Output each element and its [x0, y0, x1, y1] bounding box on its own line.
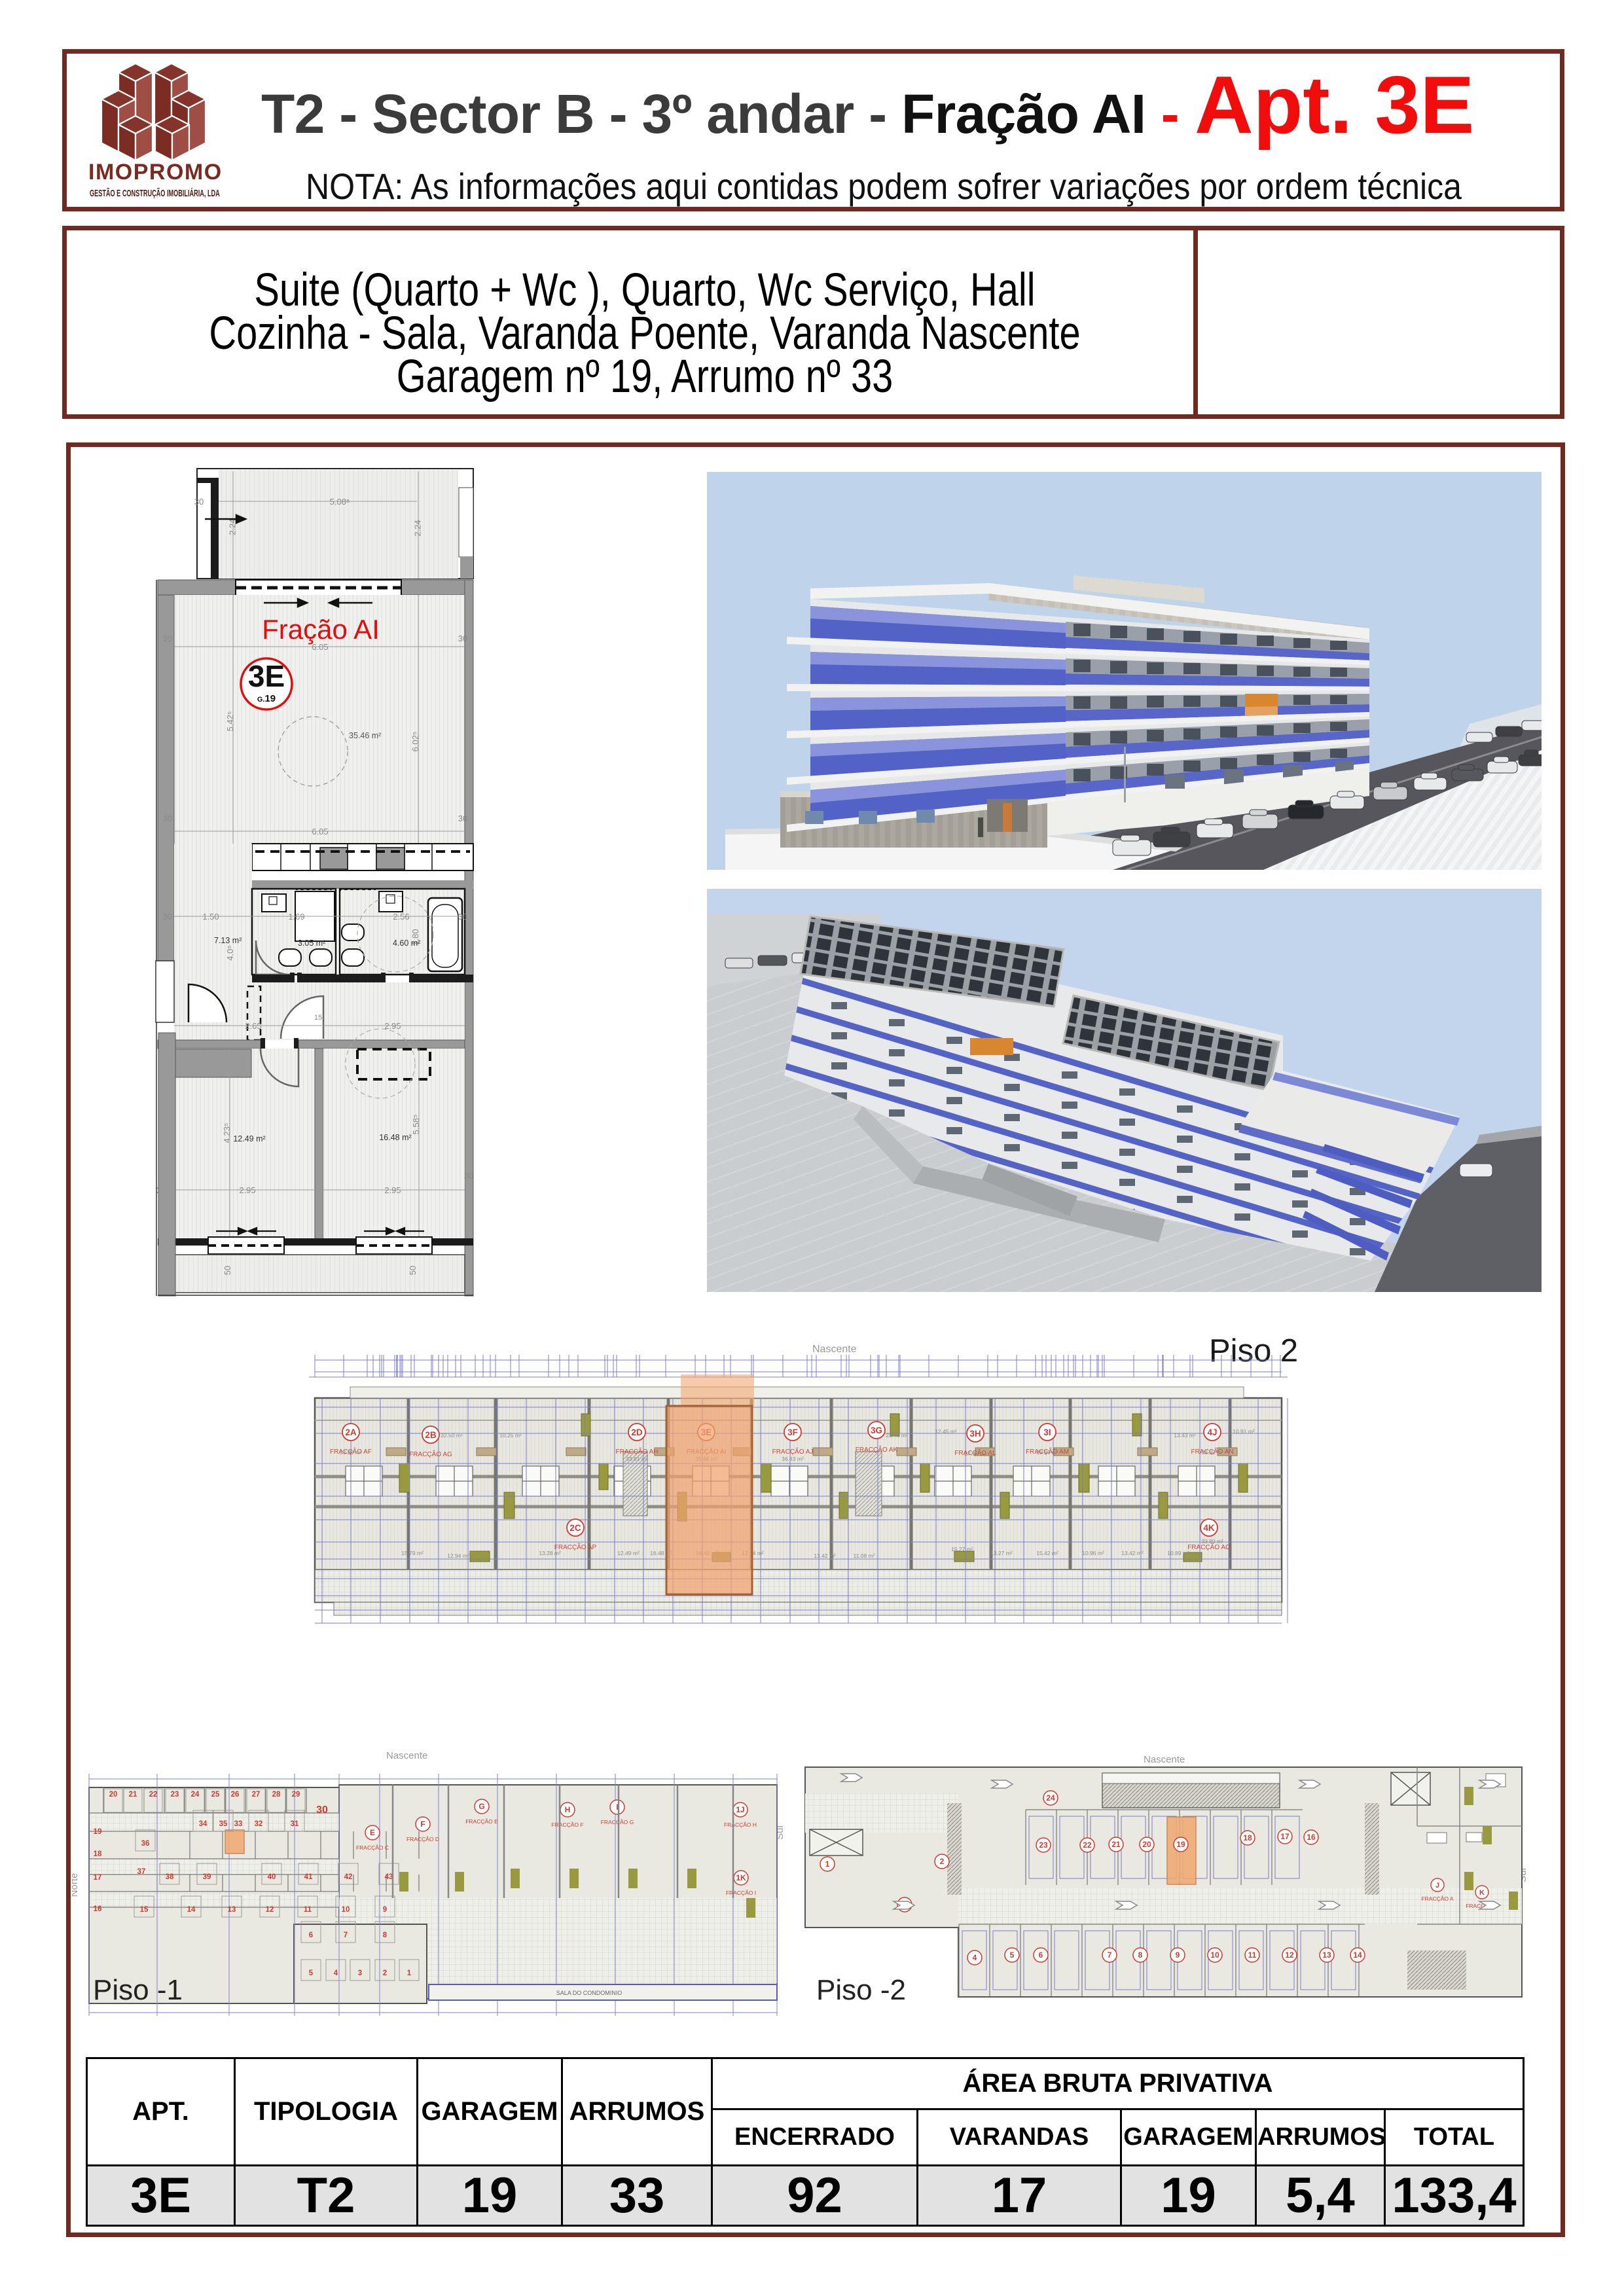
svg-text:10: 10: [342, 1906, 350, 1914]
svg-text:3G: 3G: [871, 1426, 882, 1435]
svg-text:2D: 2D: [631, 1427, 643, 1437]
svg-text:FRACÇÃO G: FRACÇÃO G: [601, 1819, 634, 1825]
svg-text:8: 8: [1138, 1950, 1143, 1960]
svg-text:23: 23: [1039, 1840, 1048, 1850]
svg-text:42: 42: [344, 1873, 353, 1881]
svg-text:F: F: [420, 1820, 425, 1829]
svg-text:Piso -1: Piso -1: [93, 1974, 183, 2006]
svg-text:13: 13: [1322, 1950, 1331, 1960]
svg-text:FRACÇÃO AH: FRACÇÃO AH: [615, 1447, 658, 1456]
svg-text:24: 24: [191, 1791, 200, 1799]
svg-text:7: 7: [344, 1931, 348, 1939]
svg-text:6.05: 6.05: [312, 642, 328, 652]
svg-text:Nascente: Nascente: [386, 1750, 427, 1761]
svg-text:3.05 m²: 3.05 m²: [298, 939, 325, 948]
svg-text:Nascente: Nascente: [812, 1344, 857, 1355]
svg-text:7: 7: [1108, 1950, 1112, 1960]
svg-text:13.28 m²: 13.28 m²: [539, 1550, 561, 1556]
svg-text:17: 17: [1280, 1832, 1290, 1841]
svg-text:2C: 2C: [569, 1523, 581, 1533]
svg-text:12: 12: [1285, 1950, 1294, 1960]
svg-text:2: 2: [383, 1969, 387, 1977]
svg-text:12.49 m²: 12.49 m²: [617, 1550, 640, 1556]
svg-text:32: 32: [255, 1820, 263, 1828]
svg-text:30: 30: [163, 912, 172, 922]
svg-text:6: 6: [309, 1931, 313, 1939]
svg-text:18: 18: [1243, 1833, 1252, 1842]
svg-text:11: 11: [304, 1906, 312, 1914]
svg-text:FRACÇÃO H: FRACÇÃO H: [724, 1821, 757, 1828]
svg-text:30: 30: [458, 814, 467, 823]
svg-text:Norte: Norte: [72, 1873, 80, 1897]
svg-text:33.81 m²: 33.81 m²: [626, 1456, 648, 1462]
svg-text:37: 37: [137, 1868, 146, 1876]
svg-text:15: 15: [140, 1906, 149, 1914]
svg-text:SALA DO CONDOMINIO: SALA DO CONDOMINIO: [556, 1990, 623, 1996]
svg-text:2: 2: [940, 1857, 945, 1866]
svg-text:31: 31: [291, 1820, 299, 1828]
svg-text:FRACÇÃO E: FRACÇÃO E: [465, 1818, 498, 1825]
svg-text:43: 43: [385, 1873, 393, 1881]
svg-text:35.46 m²: 35.46 m²: [349, 731, 381, 740]
svg-text:H: H: [565, 1805, 571, 1814]
svg-text:1J: 1J: [736, 1805, 744, 1814]
svg-text:4J: 4J: [1207, 1427, 1217, 1437]
svg-text:27.96 m²: 27.96 m²: [964, 1450, 986, 1457]
svg-text:10.96 m²: 10.96 m²: [1082, 1550, 1104, 1556]
svg-text:FRACÇÃO AK: FRACÇÃO AK: [856, 1445, 898, 1454]
svg-text:39: 39: [203, 1873, 211, 1881]
svg-text:4: 4: [334, 1969, 338, 1977]
svg-text:25: 25: [211, 1791, 220, 1799]
svg-text:J: J: [1435, 1882, 1439, 1890]
svg-text:30: 30: [458, 634, 467, 643]
svg-text:4K: 4K: [1203, 1523, 1215, 1533]
svg-text:7.13 m²: 7.13 m²: [214, 936, 242, 945]
svg-text:10.89 m²: 10.89 m²: [1167, 1550, 1189, 1556]
svg-text:3F: 3F: [787, 1427, 798, 1437]
svg-text:12: 12: [266, 1906, 274, 1914]
svg-text:14: 14: [1353, 1950, 1362, 1960]
svg-text:15: 15: [314, 1014, 322, 1022]
svg-text:FRACÇÃO I: FRACÇÃO I: [726, 1890, 756, 1896]
svg-text:Piso -2: Piso -2: [816, 1974, 906, 2006]
svg-text:36.36 m²: 36.36 m²: [340, 1449, 362, 1456]
svg-text:5.58⁵: 5.58⁵: [411, 1115, 421, 1135]
svg-text:21: 21: [129, 1791, 137, 1799]
svg-text:FRACÇÃO D: FRACÇÃO D: [406, 1836, 439, 1842]
svg-text:19: 19: [94, 1828, 102, 1836]
svg-text:50: 50: [408, 1266, 418, 1275]
svg-text:K: K: [1479, 1889, 1485, 1897]
svg-text:FRACÇÃO A: FRACÇÃO A: [1421, 1895, 1453, 1902]
svg-text:FRACÇÃO AJ: FRACÇÃO AJ: [772, 1447, 814, 1456]
svg-text:4.60 m²: 4.60 m²: [393, 939, 420, 948]
svg-text:2.24: 2.24: [412, 520, 422, 536]
svg-text:4: 4: [973, 1953, 977, 1962]
svg-text:34: 34: [199, 1820, 208, 1828]
svg-text:1: 1: [407, 1969, 412, 1977]
svg-text:16: 16: [1307, 1833, 1316, 1842]
svg-text:6: 6: [1039, 1950, 1043, 1960]
svg-text:15.27 m²: 15.27 m²: [951, 1546, 973, 1552]
svg-text:33.82 m²: 33.82 m²: [1201, 1449, 1223, 1456]
svg-text:30: 30: [163, 634, 172, 643]
svg-text:28: 28: [272, 1791, 281, 1799]
svg-text:40: 40: [268, 1873, 276, 1881]
svg-text:41: 41: [304, 1873, 313, 1881]
svg-text:4.0⁵: 4.0⁵: [225, 945, 235, 960]
svg-text:32.50 m²: 32.50 m²: [441, 1432, 463, 1439]
svg-text:19: 19: [1176, 1840, 1185, 1849]
svg-text:30: 30: [163, 814, 172, 823]
svg-text:Nascente: Nascente: [1144, 1754, 1185, 1765]
svg-text:16.48 m²: 16.48 m²: [379, 1133, 411, 1142]
svg-text:14: 14: [187, 1906, 196, 1914]
svg-text:FRACÇÃO AG: FRACÇÃO AG: [409, 1450, 452, 1458]
svg-text:E: E: [370, 1828, 375, 1837]
svg-text:Fração AI: Fração AI: [262, 614, 380, 645]
svg-text:G: G: [478, 1802, 484, 1811]
svg-text:12.49 m²: 12.49 m²: [233, 1134, 265, 1143]
svg-text:36: 36: [141, 1840, 150, 1848]
svg-text:36.43 m²: 36.43 m²: [782, 1456, 804, 1462]
svg-text:30: 30: [464, 1171, 473, 1181]
svg-text:30: 30: [316, 1804, 328, 1816]
svg-text:50: 50: [223, 1266, 232, 1275]
svg-text:20: 20: [1142, 1840, 1151, 1849]
svg-text:3I: 3I: [1043, 1427, 1051, 1437]
svg-text:6.02⁵: 6.02⁵: [410, 732, 420, 752]
svg-text:35: 35: [219, 1820, 228, 1828]
svg-text:3H: 3H: [969, 1429, 981, 1439]
svg-text:33: 33: [234, 1820, 243, 1828]
svg-text:5: 5: [1010, 1950, 1015, 1960]
svg-text:1: 1: [825, 1859, 830, 1869]
svg-text:1K: 1K: [736, 1873, 746, 1882]
svg-text:15.42 m²: 15.42 m²: [1036, 1550, 1058, 1556]
svg-text:30: 30: [194, 497, 204, 507]
svg-text:22: 22: [1083, 1840, 1092, 1850]
svg-text:10: 10: [1210, 1950, 1219, 1960]
svg-text:4.23⁵: 4.23⁵: [222, 1123, 232, 1143]
svg-text:20: 20: [109, 1791, 118, 1799]
svg-text:13.43 m²: 13.43 m²: [1174, 1432, 1196, 1439]
svg-text:5.08⁵: 5.08⁵: [330, 497, 350, 507]
svg-text:5: 5: [309, 1969, 314, 1977]
svg-text:12.45 m²: 12.45 m²: [935, 1428, 957, 1435]
svg-text:33.80 m²: 33.80 m²: [1201, 1538, 1223, 1545]
svg-text:23.48 m²: 23.48 m²: [886, 1432, 908, 1439]
svg-text:3E: 3E: [248, 659, 285, 693]
svg-text:FRACÇÃO C: FRACÇÃO C: [356, 1844, 389, 1851]
svg-text:3: 3: [358, 1969, 362, 1977]
svg-text:13.42 m²: 13.42 m²: [1121, 1550, 1144, 1556]
svg-text:11: 11: [1248, 1950, 1257, 1960]
svg-text:21: 21: [1111, 1840, 1121, 1849]
svg-text:9: 9: [383, 1906, 387, 1914]
svg-text:18: 18: [94, 1850, 102, 1858]
svg-text:12.94 m²: 12.94 m²: [447, 1552, 469, 1559]
svg-text:22: 22: [149, 1791, 158, 1799]
svg-text:2B: 2B: [425, 1430, 437, 1440]
svg-text:26: 26: [231, 1791, 240, 1799]
svg-text:24: 24: [1046, 1793, 1055, 1803]
svg-text:38: 38: [166, 1873, 174, 1881]
svg-text:8: 8: [383, 1931, 388, 1939]
svg-text:9: 9: [1176, 1950, 1180, 1960]
svg-text:2A: 2A: [345, 1427, 357, 1437]
svg-text:15.79 m²: 15.79 m²: [401, 1550, 424, 1556]
svg-text:13: 13: [228, 1906, 236, 1914]
svg-text:10.25 m²: 10.25 m²: [499, 1432, 522, 1439]
svg-text:5.42⁵: 5.42⁵: [225, 711, 235, 732]
svg-text:16: 16: [94, 1905, 102, 1913]
svg-text:17: 17: [94, 1874, 102, 1882]
svg-text:29: 29: [292, 1791, 300, 1799]
svg-text:29.96 m²: 29.96 m²: [1036, 1449, 1058, 1456]
svg-text:13.42 m²: 13.42 m²: [814, 1552, 836, 1559]
svg-text:10.91 m²: 10.91 m²: [1233, 1428, 1255, 1435]
svg-text:23: 23: [171, 1791, 179, 1799]
svg-text:27: 27: [252, 1791, 261, 1799]
svg-text:11.08 m²: 11.08 m²: [854, 1552, 875, 1559]
svg-text:13.27 m²: 13.27 m²: [990, 1550, 1013, 1556]
svg-text:FRACÇÃO F: FRACÇÃO F: [551, 1821, 583, 1828]
